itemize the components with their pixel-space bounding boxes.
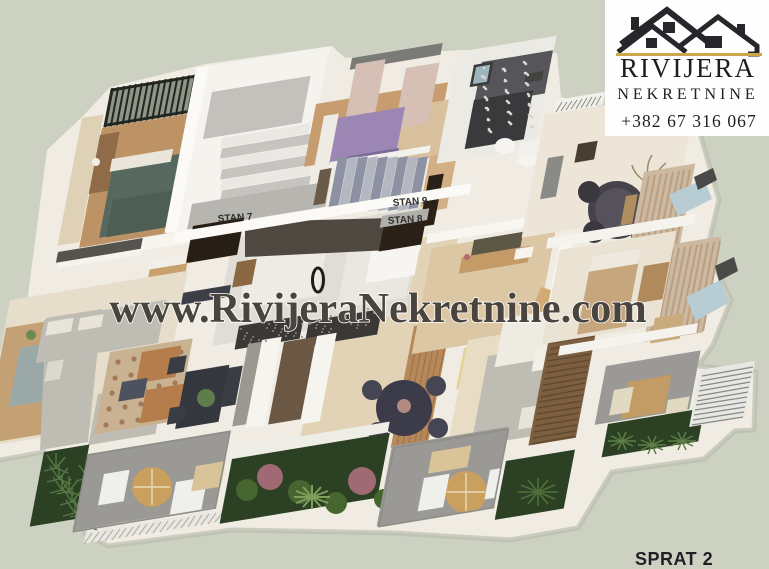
svg-text:NEKRETNINE: NEKRETNINE <box>617 86 758 103</box>
svg-text:SPRAT 2: SPRAT 2 <box>635 549 713 569</box>
svg-text:RIVIJERA: RIVIJERA <box>620 53 756 83</box>
svg-text:+382 67 316 067: +382 67 316 067 <box>621 111 757 131</box>
svg-text:www.RivijeraNekretnine.com: www.RivijeraNekretnine.com <box>109 285 646 332</box>
